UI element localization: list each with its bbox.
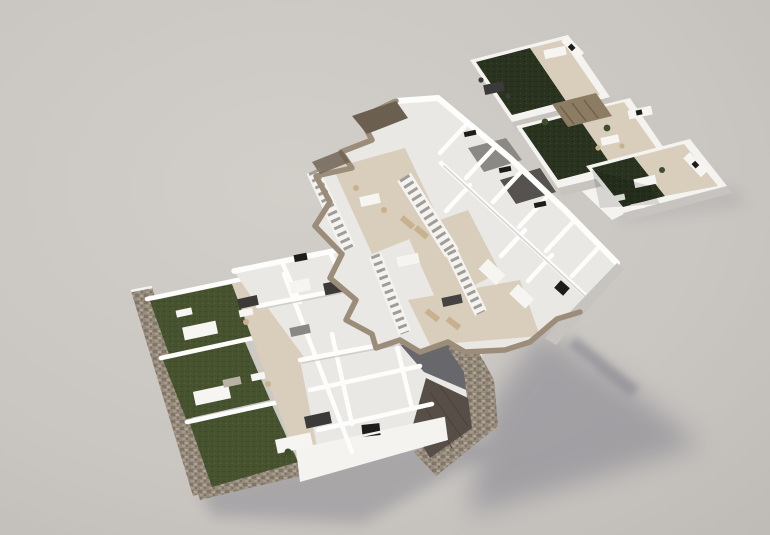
chair	[505, 93, 510, 98]
chair	[265, 381, 271, 387]
chair	[353, 185, 359, 191]
chair	[243, 319, 249, 325]
plant	[604, 125, 611, 132]
chair	[478, 77, 483, 82]
chair	[619, 143, 624, 148]
render-canvas	[0, 0, 770, 535]
floorplan-3d-render	[0, 0, 770, 535]
plant	[659, 167, 665, 173]
chair	[381, 207, 387, 213]
chair	[595, 145, 600, 150]
plant	[542, 119, 549, 126]
plant	[285, 449, 292, 456]
